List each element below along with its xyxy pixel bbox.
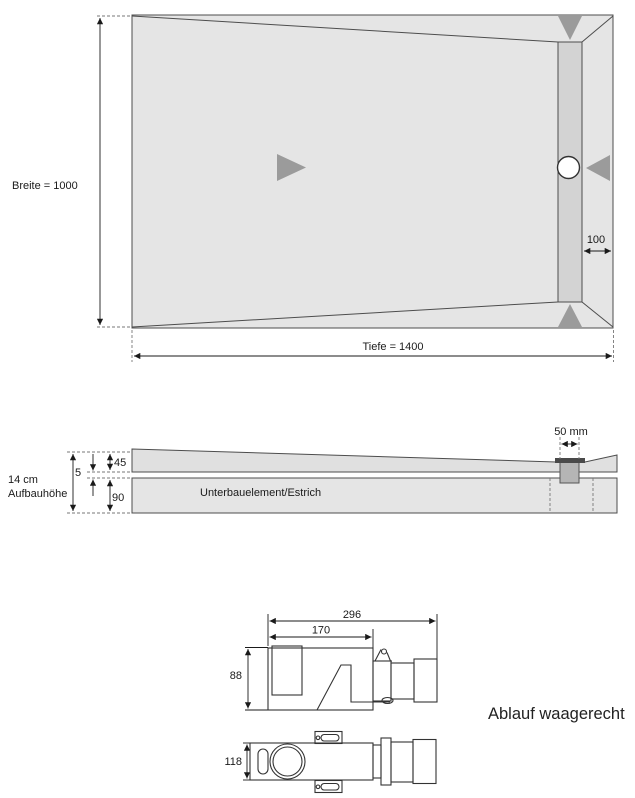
- inlet-funnel: [272, 646, 302, 695]
- element-thickness-label: 45: [114, 457, 126, 469]
- outlet-socket-plan: [413, 740, 436, 784]
- body-length-label: 170: [312, 625, 330, 637]
- drain-side-view: 296 170 88: [230, 609, 437, 710]
- vent-detail-left: [375, 650, 381, 662]
- side-height-label: 88: [230, 670, 242, 682]
- channel-width-label: 50 mm: [554, 426, 588, 438]
- mounting-hole-top: [316, 736, 320, 740]
- tiefe-label: Tiefe = 1400: [362, 341, 423, 353]
- plan-view: Breite = 1000 Tiefe = 1400 100: [12, 15, 614, 362]
- substrate-label: Unterbauelement/Estrich: [200, 487, 321, 499]
- mounting-slot-bottom: [321, 784, 339, 791]
- outlet-pipe-plan: [391, 742, 413, 782]
- plan-width-label: 118: [224, 756, 242, 768]
- adhesive-gap-label: 5: [75, 467, 81, 479]
- drain-opening-inner: [273, 747, 302, 776]
- drawing-svg: Breite = 1000 Tiefe = 1400 100 Unterbaue…: [0, 0, 635, 798]
- overall-length-label: 296: [343, 609, 361, 621]
- drain-plan-view: 118: [224, 732, 436, 793]
- breite-label: Breite = 1000: [12, 180, 78, 192]
- outlet-neck-plan: [373, 745, 381, 778]
- mounting-hole-bottom: [316, 785, 320, 789]
- drain-opening-outer: [270, 744, 305, 779]
- mounting-tab-bottom: [315, 781, 342, 793]
- vent-detail-right: [387, 653, 391, 662]
- side-slot: [258, 749, 268, 774]
- outlet-pipe-side: [391, 663, 414, 699]
- drain-caption: Ablauf waagerecht: [488, 705, 625, 723]
- channel-edge-distance-label: 100: [587, 234, 605, 246]
- vent-detail-circle: [382, 649, 387, 654]
- section-view: Unterbauelement/Estrich 50 mm 14 cm Aufb…: [8, 426, 617, 513]
- drain-body-side-outline: [268, 648, 373, 710]
- mounting-slot-top: [321, 735, 339, 742]
- drain-body-section: [560, 462, 579, 483]
- shower-element-outline: [132, 15, 613, 328]
- total-height-label-line2: Aufbauhöhe: [8, 488, 67, 500]
- outlet-socket-side: [414, 659, 437, 702]
- drain-outlet-circle: [558, 157, 580, 179]
- mounting-tab-top: [315, 732, 342, 744]
- drain-grate: [555, 458, 585, 463]
- trap-partition: [317, 665, 390, 710]
- substrate-thickness-label: 90: [112, 492, 124, 504]
- clamp-flange-plan: [381, 738, 391, 785]
- shower-element-slab: [132, 449, 617, 472]
- technical-drawing-page: Breite = 1000 Tiefe = 1400 100 Unterbaue…: [0, 0, 635, 798]
- total-height-label-line1: 14 cm: [8, 474, 38, 486]
- outlet-step: [373, 661, 391, 701]
